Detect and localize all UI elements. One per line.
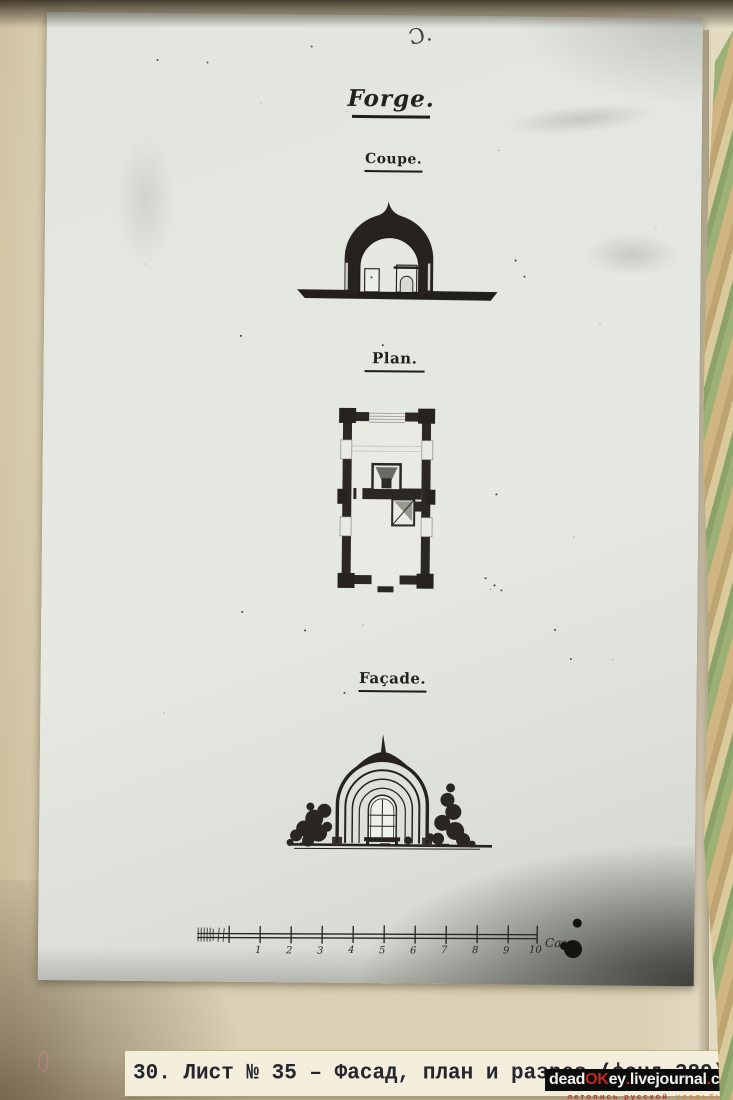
- photo-print: Ɔ. Forge. Coupe.: [38, 12, 703, 986]
- svg-text:4: 4: [347, 945, 354, 956]
- plate-title-text: Forge.: [347, 85, 435, 113]
- watermark-segment: livejournal: [630, 1071, 707, 1089]
- scale-tick-labels: 1 2 3 4 5 6 7 8 9 10: [255, 942, 542, 959]
- watermark-segment: ey: [609, 1071, 626, 1089]
- plan-label-text: Plan.: [372, 349, 417, 367]
- scale-subdivisions: [198, 927, 224, 941]
- watermark-site: deadOKey.livejournal.com: [545, 1069, 733, 1091]
- facade-underline: [358, 690, 426, 693]
- page-top-shadow: [0, 0, 733, 28]
- right-shrubs: [404, 783, 476, 848]
- svg-text:7: 7: [441, 945, 448, 956]
- facade-drawing: [280, 722, 501, 866]
- smudge: [115, 133, 176, 264]
- watermark-tagline: летопись русскойусадьбы: [545, 1092, 733, 1100]
- plan-drawing: [327, 402, 445, 595]
- svg-text:2: 2: [285, 945, 292, 956]
- svg-text:8: 8: [472, 945, 478, 956]
- svg-text:1: 1: [255, 945, 261, 956]
- svg-text:6: 6: [410, 946, 417, 957]
- watermark: deadOKey.livejournal.com летопись русско…: [545, 1069, 733, 1100]
- scale-bar-drawing: 1 2 3 4 5 6 7 8 9 10 Саж.: [185, 911, 595, 961]
- watermark-segment: dead: [549, 1071, 585, 1089]
- coupe-section-drawing: [291, 194, 504, 322]
- section-label-coupe: Coupe.: [355, 151, 431, 173]
- section-label-facade: Façade.: [352, 669, 432, 693]
- left-shrubs: [287, 802, 333, 846]
- title-underline: [352, 115, 430, 118]
- plan-underline: [365, 370, 425, 373]
- pencil-squiggle: [36, 1044, 56, 1080]
- photographed-album-page: Ɔ. Forge. Coupe.: [0, 0, 733, 1100]
- ink-blot: [564, 940, 582, 958]
- watermark-segment: летопись русской: [567, 1092, 669, 1100]
- svg-text:10: 10: [529, 945, 542, 956]
- section-label-plan: Plan.: [360, 349, 430, 373]
- album-page: Ɔ. Forge. Coupe.: [0, 0, 733, 1100]
- ink-dot: [573, 919, 582, 928]
- svg-text:9: 9: [503, 945, 510, 956]
- svg-text:5: 5: [379, 945, 385, 956]
- plate-title: Forge.: [336, 85, 446, 119]
- coupe-label-text: Coupe.: [365, 151, 422, 168]
- print-top-right-shade: [512, 16, 703, 108]
- watermark-segment: усадьбы: [676, 1092, 724, 1100]
- watermark-segment: OK: [585, 1071, 608, 1089]
- facade-label-text: Façade.: [359, 669, 426, 688]
- smudge: [584, 232, 679, 277]
- svg-text:3: 3: [317, 946, 323, 957]
- coupe-underline: [364, 170, 422, 173]
